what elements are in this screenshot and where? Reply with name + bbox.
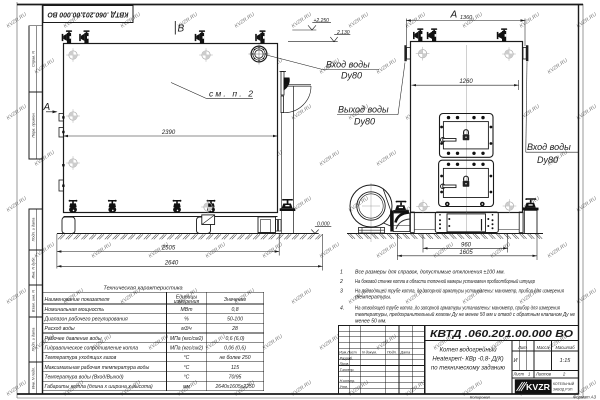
svg-text:На отводящей трубе котла ,до з: На отводящей трубе котла ,до запорной ар… — [355, 305, 560, 312]
svg-text:Масштаб: Масштаб — [555, 345, 575, 350]
svg-text:Гидравлическое сопротивление к: Гидравлическое сопротивление котла — [45, 346, 139, 352]
svg-text:0,06 (0,6): 0,06 (0,6) — [224, 346, 246, 352]
svg-text:Утв.: Утв. — [340, 385, 348, 389]
svg-text:28: 28 — [231, 326, 238, 332]
svg-text:50-100: 50-100 — [227, 317, 243, 323]
svg-text:менее 50 мм.: менее 50 мм. — [355, 318, 387, 324]
svg-text:Копировал: Копировал — [470, 394, 491, 399]
svg-text:КВТД .060.201.00.000 ВО: КВТД .060.201.00.000 ВО — [430, 329, 573, 340]
svg-text:0,8: 0,8 — [231, 307, 238, 313]
svg-text:Габариты котла (длина х ширина: Габариты котла (длина х ширина х высота) — [45, 384, 153, 390]
svg-text:м3/ч: м3/ч — [181, 326, 192, 332]
svg-text:N докум.: N докум. — [362, 351, 377, 355]
svg-text:2505: 2505 — [161, 246, 176, 252]
svg-text:Dy80: Dy80 — [537, 155, 558, 165]
svg-text:Т.контр.: Т.контр. — [340, 368, 355, 372]
svg-text:3: 3 — [340, 288, 343, 294]
svg-text:И: И — [514, 358, 518, 364]
svg-text:Техническая характеристика: Техническая характеристика — [103, 286, 182, 292]
svg-text:МПа (кгс/см2): МПа (кгс/см2) — [170, 336, 204, 342]
svg-text:Перв. примен.: Перв. примен. — [32, 112, 36, 137]
svg-text:°С: °С — [184, 355, 190, 361]
svg-text:1: 1 — [340, 270, 343, 276]
svg-text:КОТЕЛЬНЫЙ: КОТЕЛЬНЫЙ — [553, 382, 575, 386]
svg-text:Вход воды: Вход воды — [527, 142, 571, 152]
svg-text:0,6 (6,0): 0,6 (6,0) — [226, 336, 245, 342]
svg-text:1260: 1260 — [459, 79, 473, 85]
svg-text:Лит.: Лит. — [517, 345, 528, 350]
svg-text:Рабочее давление воды: Рабочее давление воды — [45, 336, 102, 342]
svg-text:2390: 2390 — [161, 130, 176, 136]
svg-text:не более 250: не более 250 — [219, 355, 250, 361]
svg-text:Инв. N подл.: Инв. N подл. — [32, 367, 36, 389]
svg-text:1:15: 1:15 — [560, 358, 572, 364]
svg-text:1360: 1360 — [460, 15, 473, 21]
svg-text:+2.250: +2.250 — [314, 18, 330, 24]
svg-text:2640х1605х2250: 2640х1605х2250 — [214, 384, 254, 390]
svg-text:Максимальная рабочая температу: Максимальная рабочая температура воды — [45, 365, 150, 371]
svg-text:Н.контр.: Н.контр. — [340, 379, 356, 383]
svg-text:На подводящей трубе котла, д: На подводящей трубе котла, до запорной а… — [355, 287, 564, 294]
svg-text:Разраб.: Разраб. — [340, 356, 353, 360]
svg-text:%: % — [184, 317, 189, 323]
svg-text:измерения: измерения — [174, 299, 200, 305]
svg-text:2640: 2640 — [164, 261, 179, 267]
svg-text:Температура воды (Вход/Выход): Температура воды (Вход/Выход) — [45, 375, 124, 381]
svg-text:70/95: 70/95 — [229, 375, 242, 381]
svg-text:2.130: 2.130 — [336, 30, 350, 36]
svg-text:Значение: Значение — [224, 297, 247, 303]
svg-text:Диапазон рабочего регулировани: Диапазон рабочего регулирования — [44, 317, 128, 323]
svg-text:Масса: Масса — [537, 345, 550, 350]
svg-text:Наименование показателя: Наименование показателя — [45, 297, 110, 303]
svg-text:Инв. N дубл.: Инв. N дубл. — [32, 257, 36, 279]
svg-text:Подп. и дата: Подп. и дата — [32, 218, 36, 242]
svg-text:0.000: 0.000 — [317, 222, 330, 228]
svg-text:Подп. и дата: Подп. и дата — [32, 328, 36, 352]
svg-text:по техническому заданию: по техническому заданию — [431, 366, 506, 372]
svg-text:В: В — [178, 24, 185, 35]
svg-text:температуры, предохранительный: температуры, предохранительный клапан Ду… — [355, 311, 575, 318]
svg-text:Листов: Листов — [535, 372, 552, 377]
svg-text:1: 1 — [528, 372, 530, 377]
svg-text:На боковой стенке котла в обла: На боковой стенке котла в области топочн… — [355, 278, 535, 285]
svg-text:мм: мм — [183, 384, 190, 390]
svg-text:Все размеры для справок, допус: Все размеры для справок, допустимые откл… — [355, 270, 505, 276]
svg-text:Взам. инв. N: Взам. инв. N — [32, 290, 36, 312]
svg-text:Dy80: Dy80 — [341, 71, 362, 81]
svg-text:Расход воды: Расход воды — [45, 326, 75, 332]
svg-text:4.: 4. — [340, 306, 344, 312]
svg-text:ЗАВОД РЭП: ЗАВОД РЭП — [553, 388, 573, 392]
svg-text:А: А — [43, 102, 51, 113]
svg-text:Вход воды: Вход воды — [326, 60, 370, 70]
svg-text:°С: °С — [184, 375, 190, 381]
svg-text:Температура уходящих газов: Температура уходящих газов — [45, 355, 117, 361]
svg-text:Пров.: Пров. — [340, 362, 350, 366]
svg-text:Подп.: Подп. — [387, 351, 397, 355]
svg-text:Dy80: Dy80 — [354, 117, 375, 127]
svg-text:Котел водогрейный: Котел водогрейный — [439, 347, 497, 354]
svg-text:температуры.: температуры. — [355, 295, 392, 301]
svg-text:115: 115 — [231, 365, 239, 371]
svg-text:1605: 1605 — [459, 250, 473, 256]
svg-text:Формат А3: Формат А3 — [573, 394, 597, 399]
svg-text:Справ. N: Справ. N — [32, 51, 36, 67]
svg-text:Heatexpert- КВр -0,8- Д(К): Heatexpert- КВр -0,8- Д(К) — [432, 357, 503, 363]
svg-text:А: А — [450, 10, 458, 21]
svg-text:Дата: Дата — [400, 351, 411, 355]
svg-text:МВт: МВт — [181, 307, 193, 313]
svg-text:МПа (кгс/см2): МПа (кгс/см2) — [170, 346, 204, 352]
svg-text:KVZR: KVZR — [526, 382, 550, 392]
svg-text:Изм.Лист: Изм.Лист — [339, 351, 356, 355]
svg-text:КВТД .060.201.00.000 ВО: КВТД .060.201.00.000 ВО — [47, 10, 129, 17]
svg-text:2: 2 — [339, 279, 343, 285]
svg-text:960: 960 — [461, 243, 472, 249]
svg-text:Номинальная мощность: Номинальная мощность — [45, 307, 105, 313]
svg-text:°С: °С — [184, 365, 190, 371]
svg-text:Выход воды: Выход воды — [338, 105, 389, 115]
svg-text:Лист: Лист — [513, 372, 525, 377]
